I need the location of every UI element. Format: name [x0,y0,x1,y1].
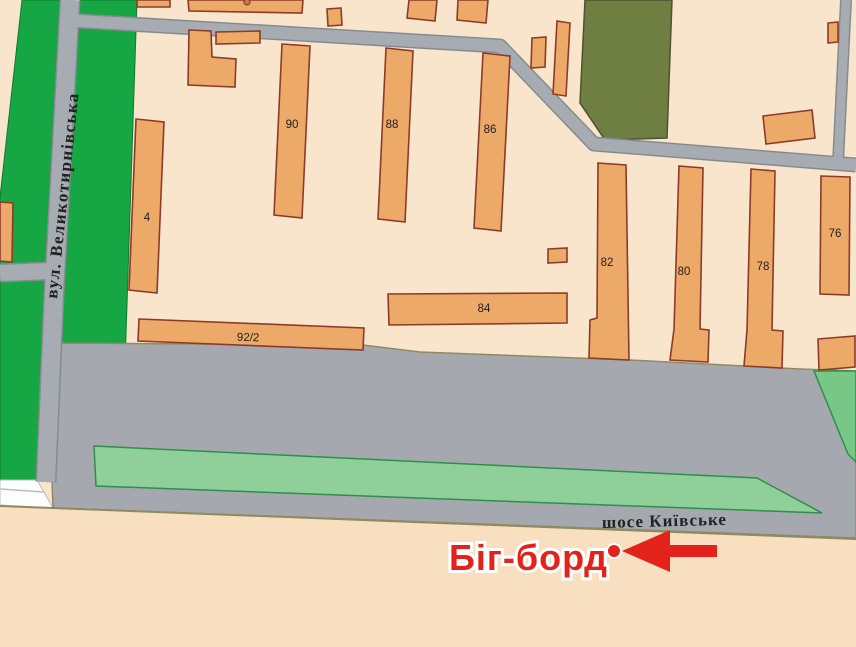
building-label-84: 84 [478,303,491,315]
building [818,336,855,370]
building [763,110,815,144]
building [327,8,342,26]
building-label-78: 78 [757,261,770,273]
olive-park [580,0,672,140]
building-label-92-2: 92/2 [237,332,260,345]
billboard-label: Біг-борд [449,537,608,578]
side-stub-road [0,271,50,273]
building-label-4: 4 [144,212,151,224]
building-label-82: 82 [601,257,614,269]
building-label-76: 76 [829,228,842,240]
building [828,22,838,43]
building-label-90: 90 [286,119,299,131]
city-map: 90 88 86 4 84 82 80 78 76 92/2 вул. Вели… [0,0,856,647]
building-4 [129,119,164,293]
building [531,37,546,68]
building [137,0,170,7]
highway-name-label: шосе Київське [602,510,728,532]
building [407,0,437,21]
building [216,31,260,44]
building [548,248,567,263]
building [0,202,13,262]
map-canvas: 90 88 86 4 84 82 80 78 76 92/2 вул. Вели… [0,0,856,647]
building-label-88: 88 [386,119,399,131]
building-label-86: 86 [484,124,497,136]
building [457,0,488,23]
building-marker-dot [244,0,250,5]
billboard-marker-dot [607,544,621,558]
building-label-80: 80 [678,266,691,278]
